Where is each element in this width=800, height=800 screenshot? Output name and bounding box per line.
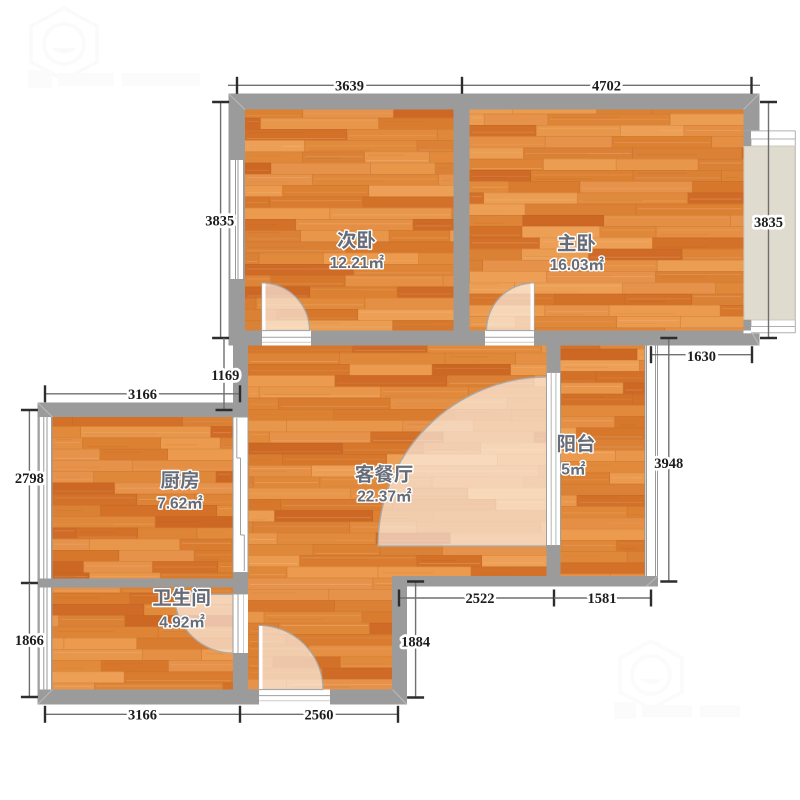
svg-text:3835: 3835 <box>754 215 783 231</box>
svg-text:12.21: 12.21 <box>330 255 369 272</box>
svg-text:3948: 3948 <box>654 456 683 472</box>
svg-text:2522: 2522 <box>466 591 495 607</box>
svg-text:1581: 1581 <box>588 591 617 607</box>
svg-text:7.62: 7.62 <box>157 496 187 513</box>
svg-text:1630: 1630 <box>687 349 716 365</box>
svg-text:4.92: 4.92 <box>159 614 189 631</box>
svg-text:4702: 4702 <box>592 79 621 95</box>
svg-text:2560: 2560 <box>305 708 334 724</box>
svg-text:1169: 1169 <box>211 368 239 384</box>
svg-text:22.37: 22.37 <box>357 489 396 506</box>
svg-text:1884: 1884 <box>401 635 430 651</box>
svg-text:3166: 3166 <box>128 708 157 724</box>
svg-text:2798: 2798 <box>15 471 44 487</box>
svg-text:3639: 3639 <box>335 79 364 95</box>
svg-text:1866: 1866 <box>15 633 44 649</box>
svg-text:3166: 3166 <box>128 387 157 403</box>
svg-text:16.03: 16.03 <box>550 257 589 274</box>
svg-text:5: 5 <box>561 462 570 479</box>
svg-text:3835: 3835 <box>205 213 234 229</box>
